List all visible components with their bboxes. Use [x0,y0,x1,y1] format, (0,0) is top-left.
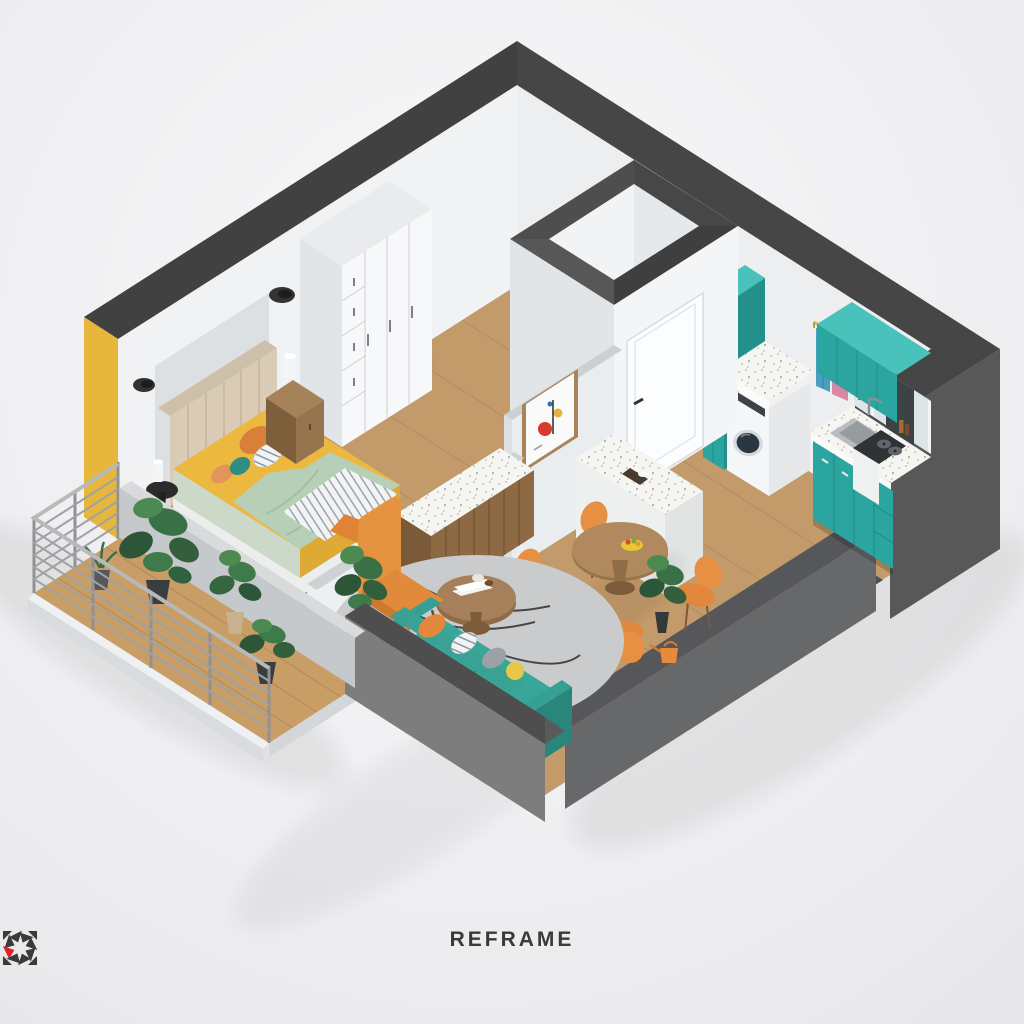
table-lamp [284,356,296,378]
poster-canvas: REFRAME [0,0,1024,1024]
reframe-logo-icon [0,928,40,968]
yellow-accent-wall-end [84,317,118,539]
isometric-apartment-render [0,0,1024,1024]
oil-bottle [899,420,904,433]
reframe-logo: REFRAME [0,928,1024,952]
reframe-logo-text: REFRAME [450,928,575,952]
